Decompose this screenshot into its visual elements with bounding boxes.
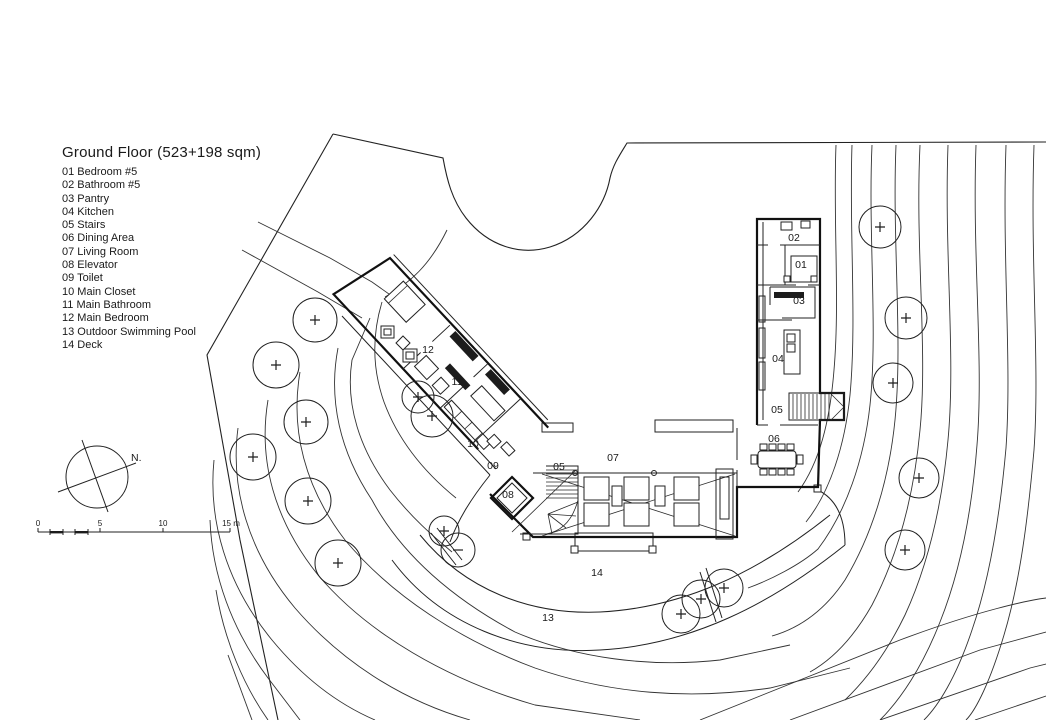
tree-plus-mark [696, 594, 706, 604]
legend-item: 05 Stairs [62, 219, 196, 232]
tree-plus-mark [271, 360, 281, 370]
room-legend: 01 Bedroom #5 02 Bathroom #5 03 Pantry 0… [62, 166, 196, 352]
kitchen-fixtures [759, 296, 800, 390]
tree-plus-mark [888, 378, 898, 388]
north-label: N. [131, 452, 142, 464]
right-wing-partitions [757, 222, 820, 420]
room-number-label: 10 [467, 438, 479, 450]
tree-plus-mark [676, 609, 686, 619]
scale-15m: 15 m [222, 519, 240, 528]
tree-plus-mark [914, 473, 924, 483]
room-number-label: 11 [452, 376, 463, 388]
room-number-label: 04 [772, 353, 784, 365]
left-wing [334, 246, 552, 473]
scale-bar: 0 5 10 15 m [36, 519, 240, 535]
tree-plus-mark [439, 526, 449, 536]
tree-plus-mark [719, 583, 729, 593]
scale-0: 0 [36, 519, 41, 528]
contour-lines [210, 145, 1046, 720]
scale-5: 5 [98, 519, 103, 528]
room-number-label: 08 [502, 489, 514, 501]
legend-item: 01 Bedroom #5 [62, 166, 196, 179]
legend-item: 04 Kitchen [62, 206, 196, 219]
legend-item: 07 Living Room [62, 246, 196, 259]
tree-plus-mark [303, 496, 313, 506]
room-number-label: 06 [768, 433, 780, 445]
room-number-label: 07 [607, 452, 619, 464]
page-title: Ground Floor (523+198 sqm) [62, 144, 261, 161]
room-number-label: 02 [788, 232, 800, 244]
tree-plus-mark [333, 558, 343, 568]
tree-plus-mark [310, 315, 320, 325]
tree-plus-mark [427, 411, 437, 421]
room-number-label: 05 [553, 461, 565, 473]
room-number-label: 12 [422, 344, 434, 356]
tree-plus-mark [901, 313, 911, 323]
tree-plus-mark [248, 452, 258, 462]
building [334, 219, 844, 539]
bathroom5-fixtures [781, 221, 810, 230]
room-labels-group: 020103040506070508091011121314 [422, 232, 807, 624]
legend-item: 09 Toilet [62, 272, 196, 285]
room-number-label: 14 [591, 567, 603, 579]
room-number-label: 13 [542, 612, 554, 624]
room-number-label: 09 [487, 460, 499, 472]
scale-10: 10 [159, 519, 168, 528]
legend-item: 06 Dining Area [62, 232, 196, 245]
legend-item: 03 Pantry [62, 193, 196, 206]
site-plan-drawing: 020103040506070508091011121314 N. 0 5 10… [0, 0, 1046, 720]
tree-plus-mark [900, 545, 910, 555]
room-number-label: 03 [793, 295, 805, 307]
floor-plan-page: 020103040506070508091011121314 N. 0 5 10… [0, 0, 1046, 720]
north-arrow: N. [58, 440, 142, 512]
tree-plus-mark [875, 222, 885, 232]
right-stairs [789, 393, 844, 420]
legend-item: 14 Deck [62, 339, 196, 352]
legend-item: 12 Main Bedroom [62, 312, 196, 325]
legend-item: 13 Outdoor Swimming Pool [62, 326, 196, 339]
legend-item: 11 Main Bathroom [62, 299, 196, 312]
legend-item: 10 Main Closet [62, 286, 196, 299]
tree-plus-mark [301, 417, 311, 427]
room-number-label: 05 [771, 404, 783, 416]
room-number-label: 01 [795, 259, 807, 271]
legend-item: 02 Bathroom #5 [62, 179, 196, 192]
dining-table [751, 444, 803, 475]
central-stairs [512, 466, 578, 534]
living-room-furniture [584, 477, 699, 526]
bedroom-accessories [381, 326, 417, 362]
legend-item: 08 Elevator [62, 259, 196, 272]
